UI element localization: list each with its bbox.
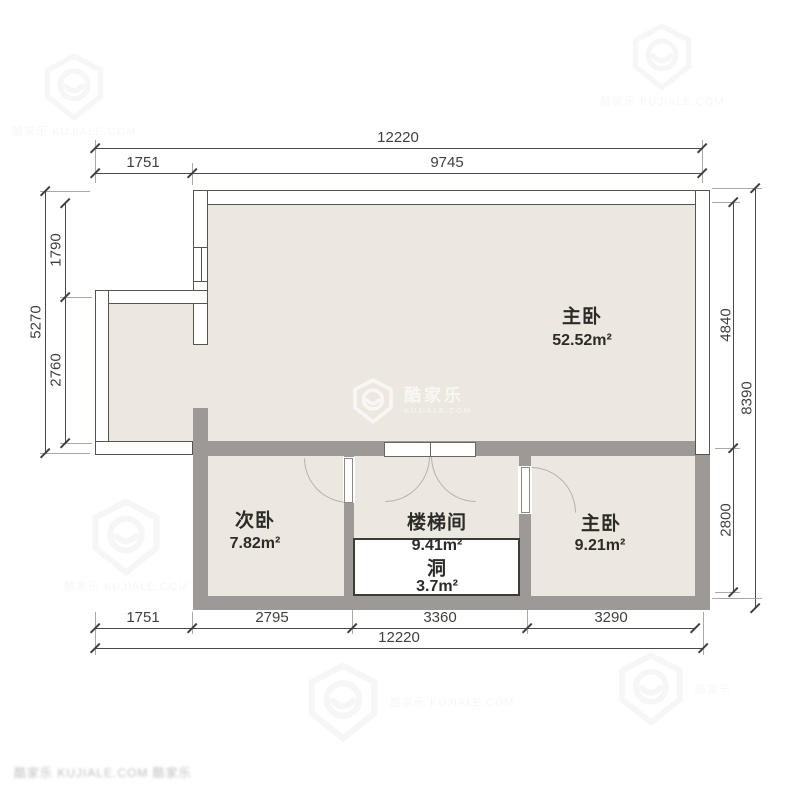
room-label-small-master-bedroom: 主卧: [581, 509, 621, 536]
dim-label: 12220: [378, 629, 420, 646]
wall-segment: [95, 290, 109, 455]
dim-extension-line: [352, 601, 353, 634]
door-leaf: [344, 458, 353, 503]
door-leaf: [521, 467, 530, 513]
room-label-second-bedroom: 次卧: [235, 506, 275, 533]
room-label-master-bedroom: 主卧: [562, 302, 602, 329]
room-area-hole: 3.7m²: [416, 578, 458, 596]
window[interactable]: [193, 247, 208, 282]
wall-segment: [193, 408, 208, 610]
brand-watermark-center: 酷家乐 KUJIALE.COM: [350, 378, 472, 424]
room-label-hole: 洞: [427, 554, 447, 581]
dim-line: [65, 203, 66, 443]
room-area-stairwell: 9.41m²: [412, 537, 463, 555]
dim-label: 4840: [718, 308, 735, 341]
dim-label: 2800: [718, 503, 735, 536]
dim-extension-line: [712, 202, 740, 203]
wall-segment: [95, 290, 208, 304]
dim-label: 3360: [423, 609, 456, 626]
brand-watermark: 酷家乐 KUJIALE.COM: [600, 23, 724, 109]
wall-segment: [193, 596, 710, 610]
room-area-small-master-bedroom: 9.21m²: [575, 537, 626, 555]
floorplan-canvas: 酷家乐 KUJIALE.COM 酷家乐 KUJIALE.COM 酷家乐 KUJI…: [0, 0, 800, 800]
door-center-line: [430, 443, 431, 456]
dim-label: 3290: [594, 609, 627, 626]
dim-extension-line: [40, 453, 90, 454]
watermark-text: 酷家乐 KUJIALE.COM: [12, 123, 136, 139]
kujiale-logo-icon: [40, 53, 108, 121]
room-area-second-bedroom: 7.82m²: [230, 535, 281, 553]
dim-label: 1751: [126, 609, 159, 626]
dim-extension-line: [527, 601, 528, 634]
kujiale-logo-icon: [628, 23, 696, 91]
dim-label: 5270: [28, 305, 45, 338]
door-leaf-pair: [384, 442, 476, 457]
dim-label: 2760: [48, 353, 65, 386]
dim-label: 1790: [48, 233, 65, 266]
wall-segment: [95, 441, 193, 455]
watermark-text: 酷家乐: [695, 681, 731, 697]
kujiale-logo-icon: [303, 662, 383, 742]
dim-label: 12220: [377, 129, 419, 146]
kujiale-logo-icon: [87, 498, 165, 576]
dim-label: 2795: [255, 609, 288, 626]
wall-segment: [695, 455, 710, 596]
room-label-stairwell: 楼梯间: [407, 508, 467, 535]
dim-line: [95, 148, 702, 149]
room-area-master-bedroom: 52.52m²: [552, 332, 612, 350]
dim-extension-line: [192, 612, 193, 634]
room-passage-floor[interactable]: [193, 345, 208, 408]
brand-watermark: 酷家乐 KUJIALE.COM: [303, 662, 514, 742]
dim-extension-line: [192, 163, 193, 185]
watermark-text: 酷家乐 KUJIALE.COM: [404, 387, 472, 415]
watermark-text: 酷家乐 KUJIALE.COM: [64, 578, 188, 594]
dim-line: [95, 648, 703, 649]
dim-label: 1751: [126, 154, 159, 171]
watermark-text: 酷家乐 KUJIALE.COM: [600, 93, 724, 109]
dim-line: [95, 173, 702, 174]
room-master-bedroom-annex-floor[interactable]: [109, 304, 193, 441]
dim-line: [45, 191, 46, 453]
dim-extension-line: [715, 592, 740, 593]
dim-extension-line: [712, 598, 762, 599]
wall-segment: [695, 190, 710, 455]
brand-watermark: 酷家乐 KUJIALE.COM: [64, 498, 188, 594]
dim-label: 9745: [430, 154, 463, 171]
corner-watermark-text: 酷家乐 KUJIALE.COM 酷家乐: [14, 764, 192, 781]
brand-watermark: 酷家乐: [614, 652, 731, 726]
wall-segment: [195, 190, 710, 205]
kujiale-logo-icon: [614, 652, 688, 726]
dim-extension-line: [715, 448, 740, 449]
watermark-text: 酷家乐 KUJIALE.COM: [390, 694, 514, 710]
dim-label: 8390: [739, 381, 756, 414]
dim-extension-line: [40, 191, 90, 192]
kujiale-logo-icon: [350, 378, 396, 424]
brand-watermark: 酷家乐 KUJIALE.COM: [12, 53, 136, 139]
window-pane-line: [201, 248, 202, 281]
